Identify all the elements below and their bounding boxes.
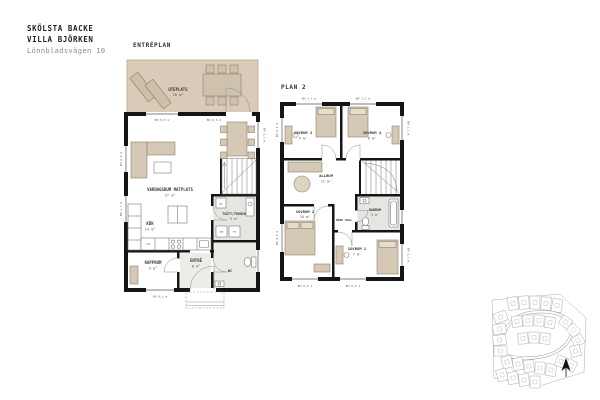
window-sill-label: BH 0,6 m (275, 123, 279, 138)
appliance-label: TT (233, 230, 237, 234)
window-sill-label: BH 0,8 m (119, 152, 123, 167)
site-lot (544, 316, 555, 328)
entreplan-drawing: UTEPLATS 28 m² VARDAGSRUM MATPLATS 27 m²… (119, 60, 267, 308)
room-label: SOVRUM 2 (296, 209, 314, 214)
site-plan-map (492, 294, 586, 388)
room-area: 8 m² (368, 137, 376, 141)
site-lot (512, 357, 524, 370)
site-lot (496, 368, 509, 382)
room-label: SOVRUM 1 (348, 246, 367, 251)
room-label: TVÄTT/TEKNIK (222, 211, 246, 216)
window-sill-label: BH 1,1 m (407, 121, 411, 136)
kitchen-counters (128, 204, 211, 250)
site-lot (535, 362, 545, 374)
room-area: 10 m² (300, 215, 310, 219)
appliance-label: TM (220, 230, 224, 234)
room-label: SOVRUM 3 (294, 130, 313, 135)
site-lot (524, 360, 535, 373)
window-sill-label: BH 1,1 m (263, 128, 267, 143)
terrace (127, 60, 258, 115)
floorplan-sheet: SKÖLSTA BACKE VILLA BJÖRKEN Lönnbladsväg… (0, 0, 600, 400)
room-area: 28 m² (173, 93, 184, 97)
site-lot (569, 344, 582, 357)
staircase (222, 159, 256, 195)
site-lot (507, 371, 519, 385)
site-lot (551, 298, 563, 313)
bedroom3-furniture (285, 107, 336, 144)
room-area: 11 m² (321, 180, 331, 184)
site-lot (518, 333, 529, 345)
room-area: 8 m² (192, 265, 201, 269)
site-lots (492, 296, 585, 388)
room-area: 9 m² (299, 137, 307, 141)
allrum-furniture (288, 162, 322, 192)
window-sill-label: BH 1,1 m (119, 202, 123, 217)
window-sill-label: BH 0,6 m (153, 295, 168, 299)
plans-drawing: UTEPLATS 28 m² VARDAGSRUM MATPLATS 27 m²… (0, 0, 600, 400)
window-sill-label: BH 0,6 m (346, 284, 361, 288)
room-label: ENTRÉ (190, 258, 203, 263)
room-area: 27 m² (165, 194, 176, 198)
window-sill-label: BH 0,6 m (275, 231, 279, 246)
room-label: KAPPRUM (145, 260, 162, 265)
room-area: 5 m² (371, 213, 379, 217)
site-lot (507, 296, 519, 310)
site-lot (529, 332, 539, 343)
window-sill-label: BH 1,1 m (356, 97, 371, 101)
room-label: KÖK (146, 221, 154, 226)
window-sill-label: BH 1,1 m (407, 248, 411, 263)
site-lot (519, 296, 530, 310)
window-sill-label: BH 0,5 m (155, 118, 170, 122)
room-label: ÖVRE HALL (336, 217, 352, 222)
staircase-upper (362, 161, 399, 195)
room-label: ALLRUM (319, 173, 333, 178)
site-lot (518, 374, 529, 387)
hall-bench (130, 266, 138, 284)
site-lot (494, 346, 507, 356)
room-area: 14 m² (145, 228, 156, 232)
appliance-label: ST (219, 202, 223, 206)
room-label: BADRUM (369, 208, 381, 212)
window-sill-label: BH 0,6 m (298, 284, 313, 288)
site-lot (534, 315, 545, 327)
room-area: 5 m² (230, 217, 238, 221)
site-lot (523, 315, 533, 326)
plan2-drawing: SOVRUM 3 9 m² SOVRUM 4 8 m² ALLRUM 11 m²… (275, 97, 411, 289)
site-lot (530, 376, 540, 388)
site-lot (540, 333, 551, 345)
room-label: UTEPLATS (168, 87, 188, 92)
site-lot (492, 323, 507, 335)
site-lot (530, 296, 540, 309)
bedroom1-furniture (336, 240, 398, 274)
room-label: VARDAGSRUM MATPLATS (147, 187, 193, 192)
room-area: 7 m² (353, 253, 361, 257)
window-sill-label: BH 0,5 m (207, 118, 222, 122)
terrace-dining-set (203, 65, 241, 105)
entry-porch (186, 292, 224, 308)
site-lot (541, 297, 552, 311)
appliance-label: LM (146, 242, 150, 246)
site-lot (493, 310, 509, 324)
room-label: WC (228, 269, 232, 273)
bedroom2-furniture (285, 221, 330, 272)
room-label: SOVRUM 4 (363, 130, 382, 135)
site-lot (511, 316, 522, 328)
window-sill-label: BH 1,1 m (302, 97, 317, 101)
site-lot (493, 334, 507, 345)
room-area: 4 m² (149, 267, 158, 271)
